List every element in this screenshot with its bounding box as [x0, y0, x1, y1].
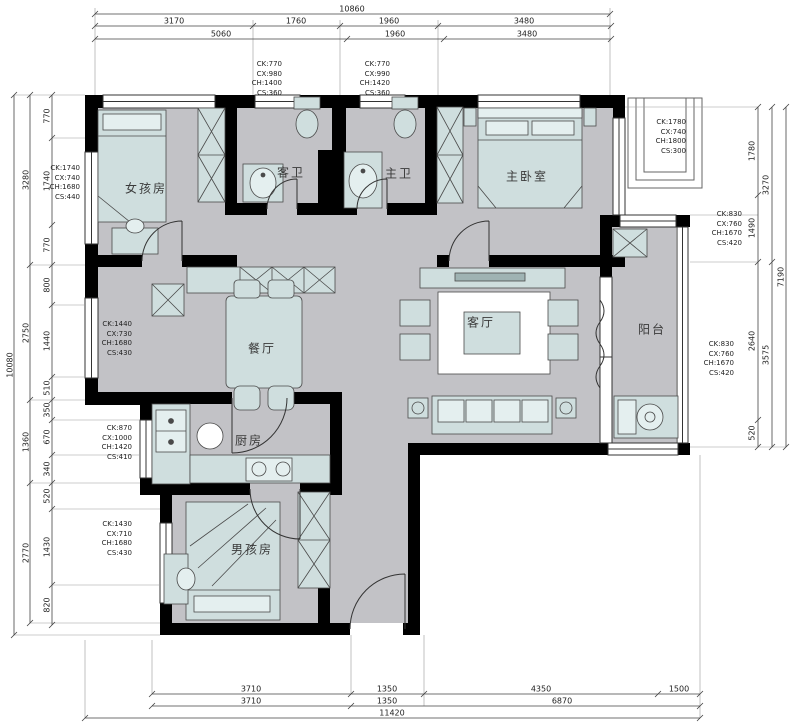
dim-top-overall: 10860 — [339, 5, 364, 14]
dim-bottom-overall: 11420 — [379, 709, 404, 718]
dim-label: 6870 — [552, 697, 572, 706]
window-spec-balcony-upper: CK:830CX:760 CH:1670CS:420 — [694, 210, 742, 248]
room-label-kitchen: 厨房 — [235, 432, 263, 449]
dim-label: 2640 — [748, 331, 757, 351]
master-bed — [478, 108, 582, 208]
floor-plan-drawing — [0, 0, 800, 725]
window-spec-guest-bath: CK:770CX:980 CH:1400CS:360 — [234, 60, 282, 98]
dim-label: 3575 — [762, 345, 771, 365]
dim-label: 1500 — [669, 685, 689, 694]
dim-label: 3710 — [241, 697, 261, 706]
dim-label: 3280 — [22, 170, 31, 190]
boy-bed — [186, 502, 280, 620]
guest-bath-toilet — [294, 97, 320, 138]
tv-console — [420, 268, 565, 288]
window-spec-master-bedroom: CK:1780CX:740 CH:1800CS:300 — [638, 118, 686, 156]
room-label-master-bath: 主卫 — [385, 165, 413, 182]
dim-label: 770 — [43, 237, 52, 252]
room-label-boy-room: 男孩房 — [231, 541, 273, 558]
armchair — [400, 300, 430, 326]
dim-label: 800 — [43, 277, 52, 292]
armchair — [400, 334, 430, 360]
dim-label: 1760 — [286, 17, 306, 26]
dim-label: 3270 — [762, 175, 771, 195]
dim-label: 1740 — [43, 171, 52, 191]
dim-label: 3170 — [164, 17, 184, 26]
floor-plan-page: 女孩房 客卫 主卫 主卧室 餐厅 客厅 阳台 厨房 男孩房 CK:770CX:9… — [0, 0, 800, 725]
room-label-balcony: 阳台 — [638, 321, 666, 338]
nightstand-left — [464, 108, 476, 126]
master-bath-sink — [344, 152, 382, 208]
window-spec-master-bath: CK:770CX:990 CH:1420CS:360 — [342, 60, 390, 98]
window-spec-balcony-lower: CK:830CX:760 CH:1670CS:420 — [686, 340, 734, 378]
window-spec-kitchen: CK:870CX:1000 CH:1420CS:410 — [84, 424, 132, 462]
dim-label: 340 — [43, 461, 52, 476]
boy-wardrobe — [298, 492, 330, 588]
master-wardrobe — [437, 107, 463, 203]
room-label-living: 客厅 — [467, 314, 495, 331]
kitchen-stool — [197, 423, 223, 449]
dim-left-overall: 10080 — [6, 352, 15, 377]
room-label-girl-room: 女孩房 — [125, 180, 167, 197]
master-bath-toilet — [392, 97, 418, 138]
dim-label: 510 — [43, 380, 52, 395]
girl-bed — [98, 110, 166, 222]
dim-label: 3710 — [241, 685, 261, 694]
nightstand-right — [584, 108, 596, 126]
dim-label: 1960 — [385, 30, 405, 39]
window-spec-dining: CK:1440CX:730 CH:1680CS:430 — [84, 320, 132, 358]
dim-label: 1780 — [748, 141, 757, 161]
dim-label: 1430 — [43, 537, 52, 557]
dim-label: 1350 — [377, 685, 397, 694]
dim-label: 4350 — [531, 685, 551, 694]
room-label-dining: 餐厅 — [248, 340, 276, 357]
dim-label: 1360 — [22, 432, 31, 452]
armchair — [548, 334, 578, 360]
dim-label: 520 — [748, 425, 757, 440]
dim-label: 3480 — [514, 17, 534, 26]
dim-label: 5060 — [211, 30, 231, 39]
dim-label: 820 — [43, 597, 52, 612]
dim-label: 2750 — [22, 323, 31, 343]
dim-label: 770 — [43, 108, 52, 123]
room-label-guest-bath: 客卫 — [277, 164, 305, 181]
window-spec-girl-room: CK:1740CX:740 CH:1680CS:440 — [32, 164, 80, 202]
dim-label: 670 — [43, 429, 52, 444]
room-label-master-bedroom: 主卧室 — [506, 168, 548, 185]
dim-label: 520 — [43, 488, 52, 503]
sofa — [432, 396, 552, 434]
balcony-cabinet — [613, 229, 647, 257]
dim-label: 1490 — [748, 218, 757, 238]
dim-label: 350 — [43, 402, 52, 417]
balcony-wash-unit — [614, 396, 678, 438]
dim-label: 1960 — [379, 17, 399, 26]
dim-label: 2770 — [22, 543, 31, 563]
dim-label: 3480 — [517, 30, 537, 39]
dim-right-overall: 7190 — [777, 267, 786, 287]
dim-label: 1350 — [377, 697, 397, 706]
dim-label: 1440 — [43, 331, 52, 351]
window-spec-boy-room: CK:1430CX:710 CH:1680CS:430 — [84, 520, 132, 558]
armchair — [548, 300, 578, 326]
girl-wardrobe — [198, 108, 225, 202]
